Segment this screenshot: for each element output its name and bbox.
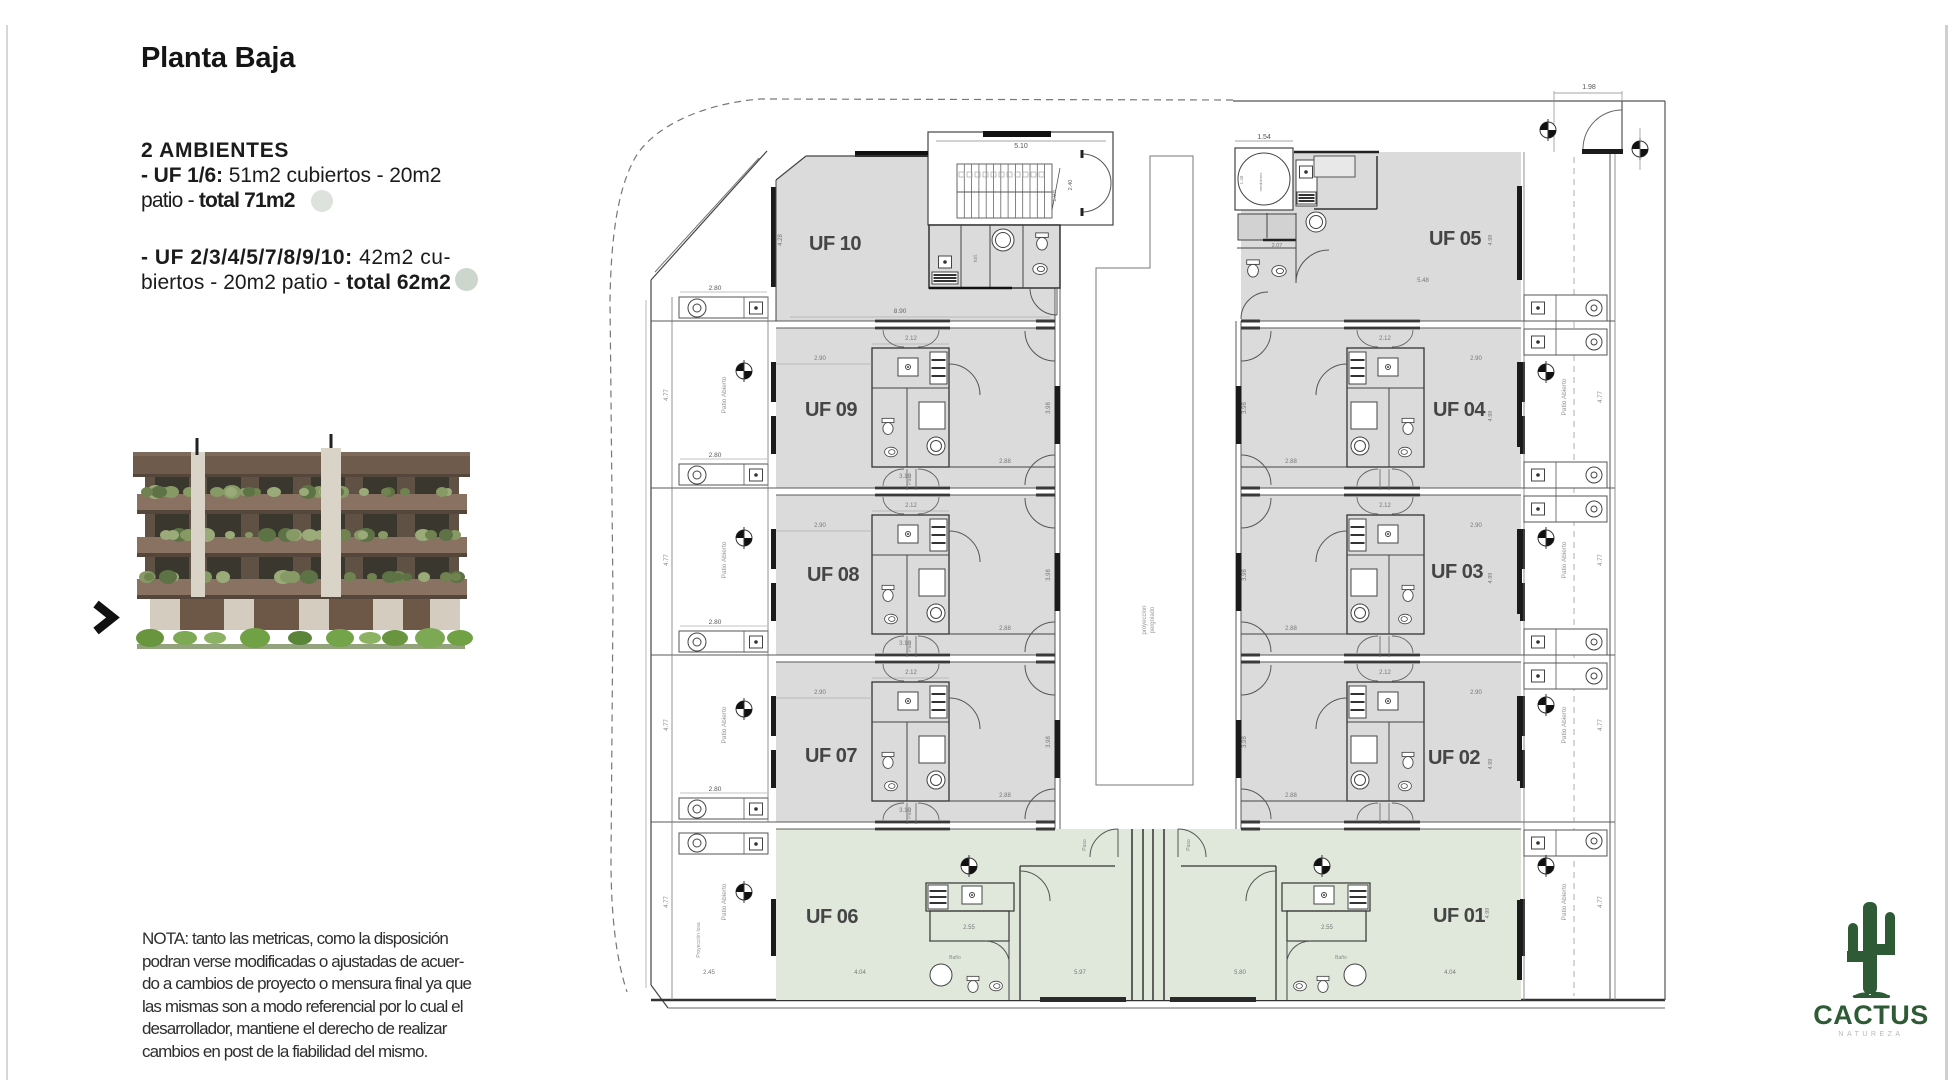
svg-text:2.88: 2.88	[999, 626, 1011, 632]
svg-text:Paso: Paso	[1082, 839, 1088, 851]
svg-text:4.77: 4.77	[664, 896, 670, 908]
svg-text:2.12: 2.12	[905, 670, 917, 676]
svg-text:UF 09: UF 09	[805, 399, 857, 421]
svg-text:NATUREZA: NATUREZA	[1838, 1031, 1903, 1038]
svg-text:UF 08: UF 08	[807, 564, 859, 586]
svg-text:4.28: 4.28	[778, 234, 784, 246]
svg-text:2.80: 2.80	[709, 285, 722, 292]
svg-text:3.10: 3.10	[899, 474, 911, 480]
svg-text:5.10: 5.10	[1014, 143, 1028, 150]
svg-text:2.07: 2.07	[1272, 243, 1283, 249]
svg-text:2.80: 2.80	[709, 452, 722, 459]
svg-text:2.88: 2.88	[999, 459, 1011, 465]
svg-text:4.99: 4.99	[1488, 759, 1494, 770]
svg-text:5.97: 5.97	[1074, 970, 1086, 976]
svg-text:Baño: Baño	[949, 955, 961, 961]
svg-text:4.77: 4.77	[1598, 554, 1604, 566]
svg-text:UF 05: UF 05	[1429, 228, 1481, 250]
svg-text:2.80: 2.80	[709, 786, 722, 793]
svg-text:2.88: 2.88	[1285, 459, 1297, 465]
svg-text:2.90: 2.90	[814, 690, 826, 696]
svg-text:2.88: 2.88	[1285, 626, 1297, 632]
svg-text:Patio Abierto: Patio Abierto	[721, 541, 728, 578]
svg-text:toil.: toil.	[973, 253, 979, 262]
svg-text:3.98: 3.98	[1046, 736, 1052, 748]
svg-text:2.12: 2.12	[1379, 336, 1391, 342]
svg-text:UF 02: UF 02	[1428, 747, 1480, 769]
svg-text:2.90: 2.90	[1470, 356, 1482, 362]
svg-text:4.77: 4.77	[664, 389, 670, 401]
svg-text:3.98: 3.98	[1242, 736, 1248, 748]
svg-text:Paso: Paso	[1186, 839, 1192, 851]
svg-text:4.99: 4.99	[1485, 908, 1491, 919]
svg-text:3.98: 3.98	[1046, 569, 1052, 581]
svg-text:CACTUS: CACTUS	[1813, 1000, 1929, 1030]
svg-text:UF 01: UF 01	[1433, 905, 1485, 927]
svg-text:2.90: 2.90	[1470, 690, 1482, 696]
svg-text:5.48: 5.48	[1417, 278, 1429, 284]
svg-text:8.90: 8.90	[894, 308, 907, 315]
svg-text:Patio Abierto: Patio Abierto	[1561, 378, 1568, 415]
svg-text:2.40: 2.40	[1068, 180, 1074, 191]
svg-text:2.88: 2.88	[1285, 793, 1297, 799]
svg-text:2.90: 2.90	[814, 356, 826, 362]
svg-text:2.45: 2.45	[703, 970, 715, 976]
svg-text:1.48: 1.48	[1239, 175, 1244, 184]
svg-text:2.88: 2.88	[999, 793, 1011, 799]
svg-text:4.99: 4.99	[1488, 411, 1494, 422]
svg-text:2.12: 2.12	[1379, 670, 1391, 676]
svg-text:Baño: Baño	[1335, 955, 1347, 961]
svg-text:2.12: 2.12	[905, 503, 917, 509]
svg-text:Patio Abierto: Patio Abierto	[1561, 706, 1568, 743]
svg-text:pergolado: pergolado	[1150, 606, 1156, 633]
svg-text:3.98: 3.98	[1242, 569, 1248, 581]
svg-text:UF 10: UF 10	[809, 233, 861, 255]
svg-text:3.10: 3.10	[899, 808, 911, 814]
svg-text:4.77: 4.77	[664, 554, 670, 566]
svg-text:2.12: 2.12	[1379, 503, 1391, 509]
svg-text:Patio Abierto: Patio Abierto	[721, 376, 728, 413]
svg-text:UF 04: UF 04	[1433, 399, 1486, 421]
svg-text:4.77: 4.77	[664, 719, 670, 731]
svg-text:4.04: 4.04	[1444, 970, 1456, 976]
svg-text:2.55: 2.55	[963, 925, 975, 931]
svg-text:2.55: 2.55	[1321, 925, 1333, 931]
svg-text:4.77: 4.77	[1598, 391, 1604, 403]
svg-text:Patio Abierto: Patio Abierto	[1561, 883, 1568, 920]
svg-text:4.99: 4.99	[1488, 235, 1494, 246]
svg-text:3.98: 3.98	[1046, 402, 1052, 414]
svg-text:4.99: 4.99	[1488, 573, 1494, 584]
svg-text:Patio Abierto: Patio Abierto	[721, 883, 728, 920]
svg-text:UF 03: UF 03	[1431, 561, 1483, 583]
svg-text:4.04: 4.04	[854, 970, 866, 976]
svg-text:4.77: 4.77	[1598, 896, 1604, 908]
svg-text:Patio Abierto: Patio Abierto	[1561, 541, 1568, 578]
svg-text:2.90: 2.90	[814, 523, 826, 529]
svg-text:UF 06: UF 06	[806, 906, 858, 928]
svg-text:proyeccion: proyeccion	[1142, 605, 1148, 634]
svg-text:2.12: 2.12	[905, 336, 917, 342]
svg-text:UF 07: UF 07	[805, 745, 857, 767]
svg-text:3.10: 3.10	[899, 641, 911, 647]
svg-text:1.54: 1.54	[1257, 134, 1271, 141]
svg-text:medidores: medidores	[1258, 173, 1263, 192]
svg-text:2.80: 2.80	[709, 619, 722, 626]
svg-text:4.77: 4.77	[1598, 719, 1604, 731]
svg-text:1.98: 1.98	[1582, 84, 1596, 91]
svg-text:5.80: 5.80	[1234, 970, 1246, 976]
svg-text:Proyección losa: Proyección losa	[696, 922, 702, 958]
svg-text:Patio Abierto: Patio Abierto	[721, 706, 728, 743]
svg-text:2.90: 2.90	[1470, 523, 1482, 529]
svg-text:3.98: 3.98	[1242, 402, 1248, 414]
svg-text:1.98: 1.98	[1052, 190, 1058, 202]
